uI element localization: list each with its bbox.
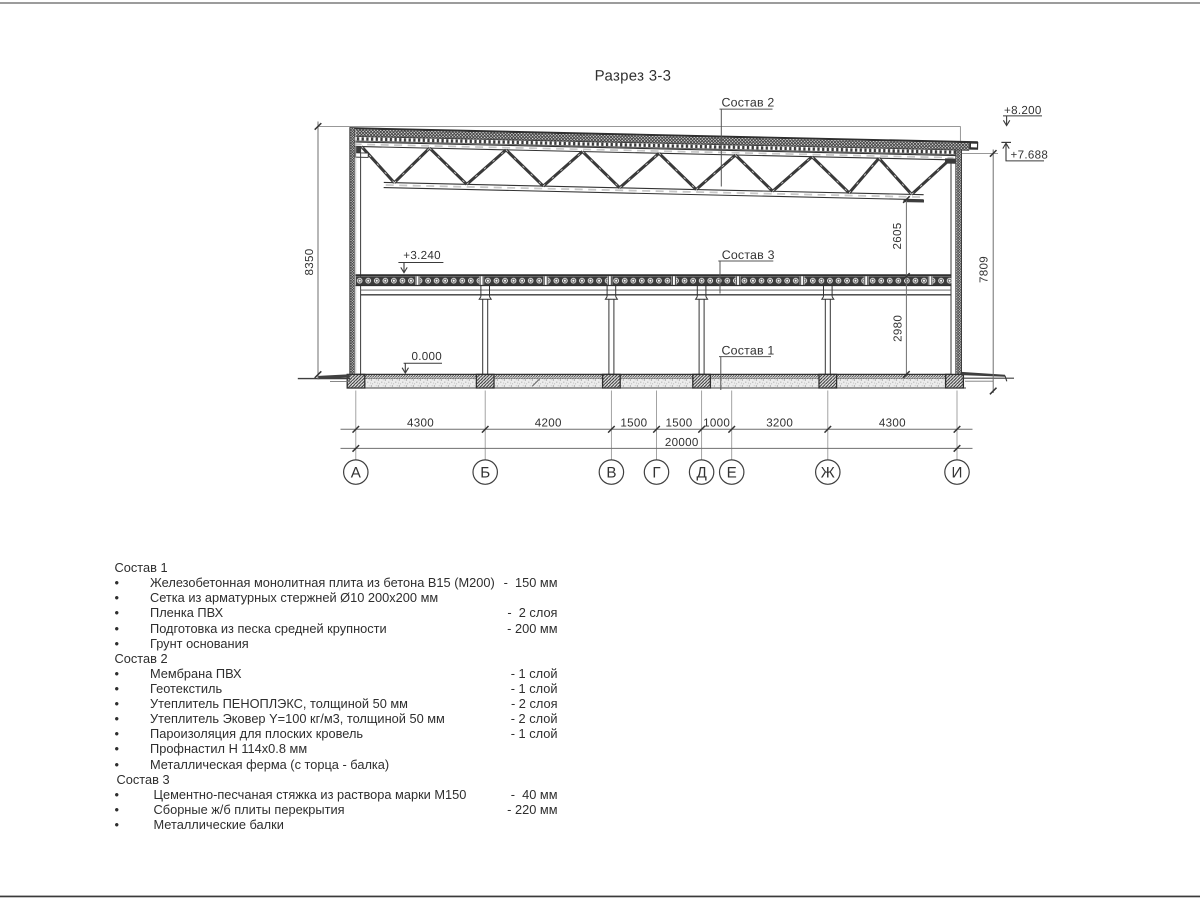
svg-text:Состав 2: Состав 2: [722, 96, 775, 110]
svg-text:4300: 4300: [879, 416, 906, 429]
svg-text:1500: 1500: [666, 416, 693, 429]
svg-text:И: И: [952, 465, 963, 482]
svg-text:1000: 1000: [703, 416, 730, 429]
svg-text:20000: 20000: [665, 436, 699, 449]
svg-text:Ж: Ж: [821, 465, 835, 482]
svg-text:Состав 1: Состав 1: [722, 343, 775, 357]
svg-text:1500: 1500: [620, 416, 647, 429]
svg-text:Разрез 3-3: Разрез 3-3: [595, 67, 672, 84]
svg-text:В: В: [606, 465, 616, 482]
svg-text:2980: 2980: [892, 315, 905, 342]
svg-text:+7.688: +7.688: [1011, 149, 1049, 162]
svg-text:Г: Г: [652, 465, 660, 482]
svg-text:2605: 2605: [891, 223, 904, 250]
svg-text:3200: 3200: [766, 416, 793, 429]
svg-text:7809: 7809: [977, 256, 990, 283]
svg-text:Состав 3: Состав 3: [722, 248, 775, 262]
svg-text:+8.200: +8.200: [1004, 104, 1042, 117]
svg-text:Е: Е: [727, 465, 737, 482]
svg-text:Д: Д: [696, 465, 706, 482]
